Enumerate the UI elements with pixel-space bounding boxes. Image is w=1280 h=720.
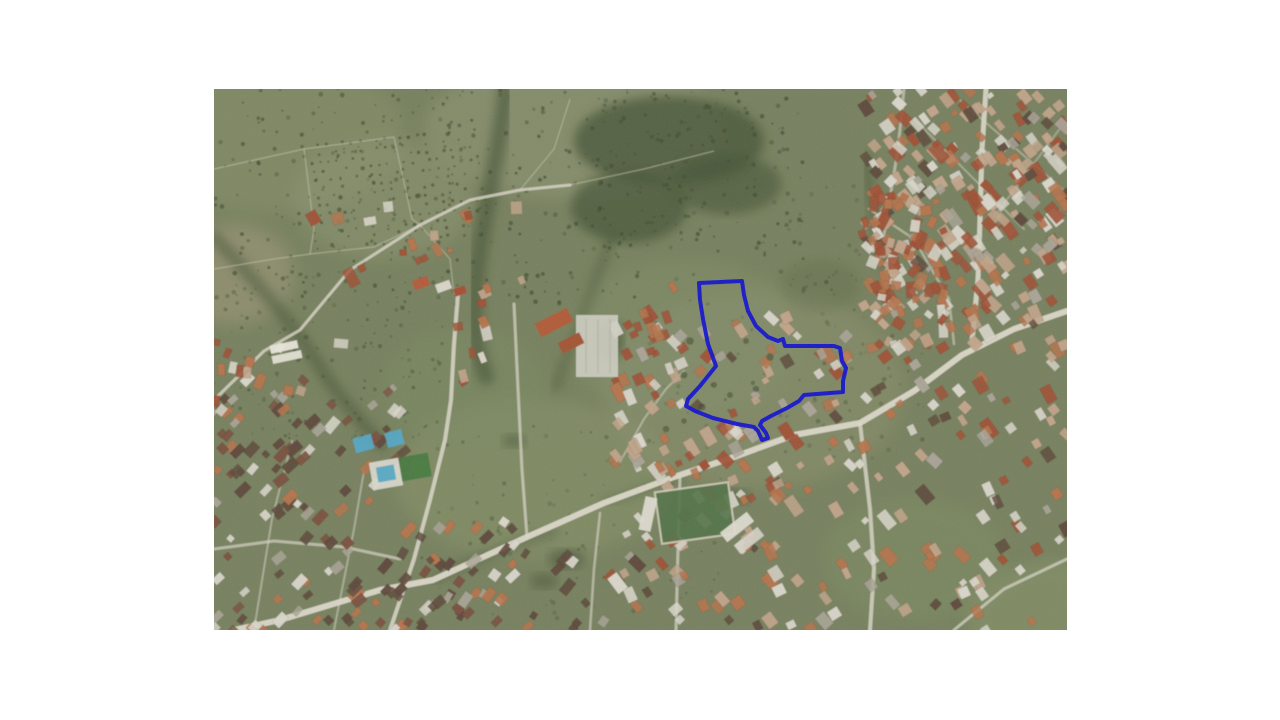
photo-grain-texture: [214, 89, 1067, 630]
map-canvas: [214, 89, 1067, 630]
satellite-map-image[interactable]: [214, 89, 1067, 630]
